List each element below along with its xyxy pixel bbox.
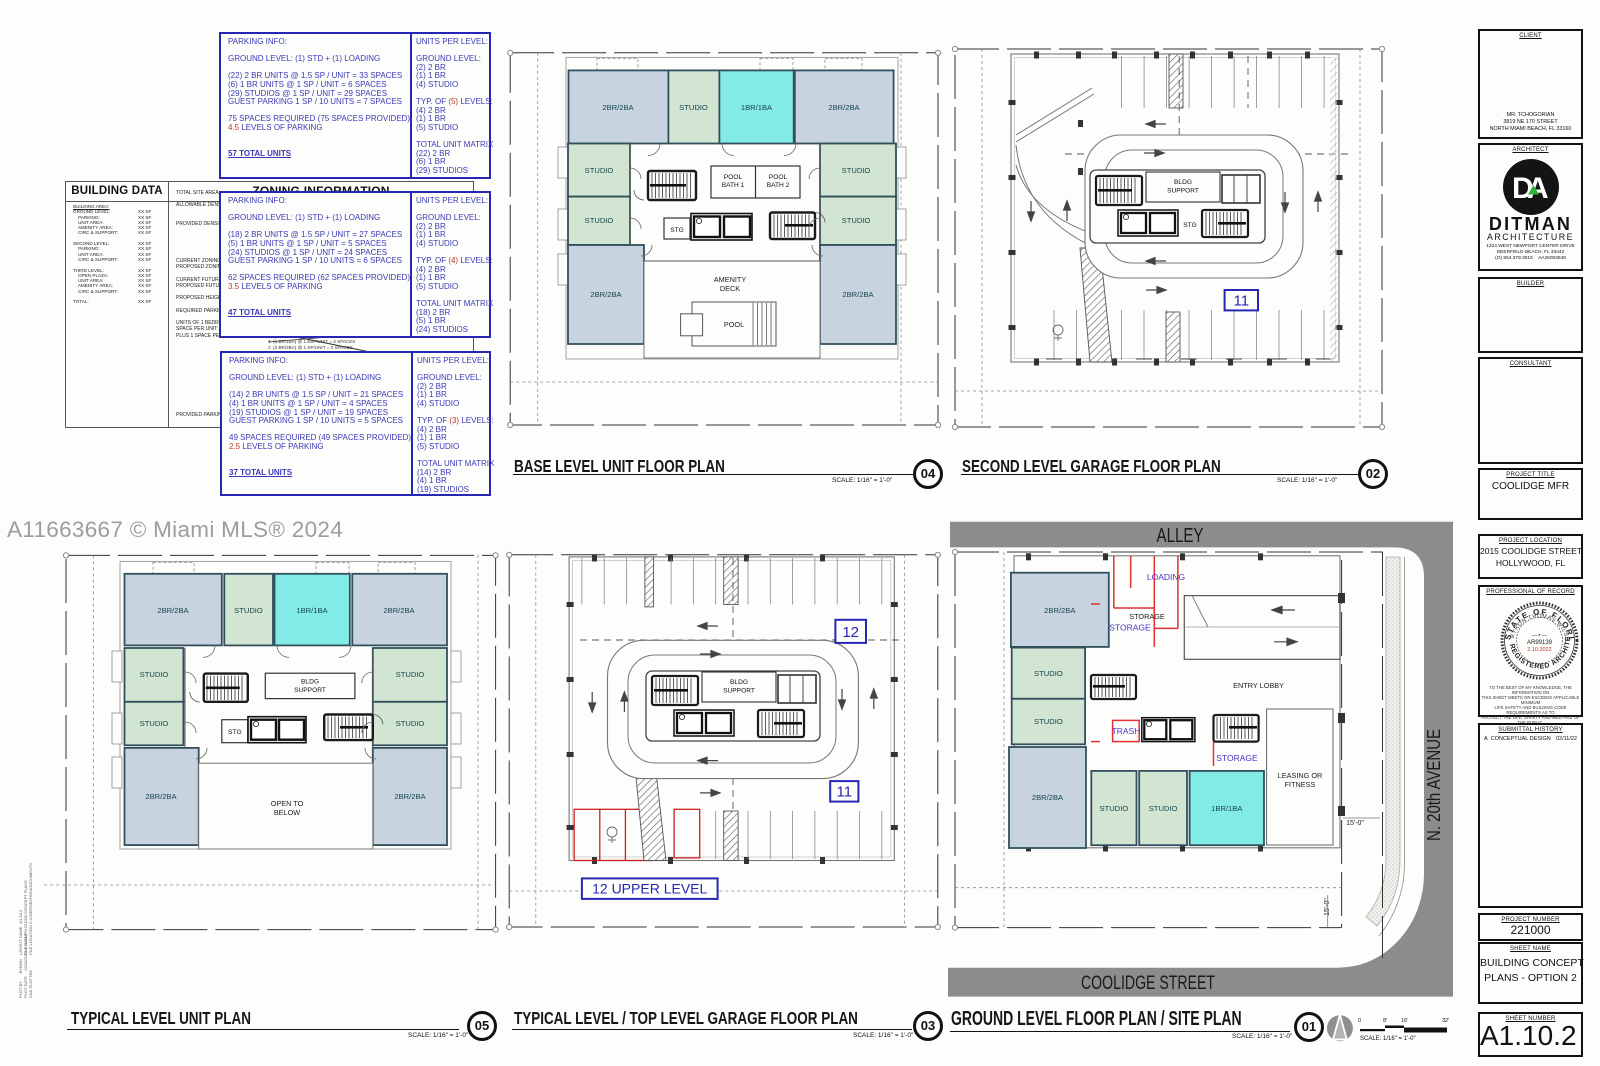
- svg-text:BLDG: BLDG: [730, 679, 748, 686]
- svg-text:2BR/2BA: 2BR/2BA: [602, 103, 634, 112]
- svg-text:STUDIO: STUDIO: [396, 670, 425, 679]
- svg-text:SUPPORT: SUPPORT: [294, 687, 326, 694]
- svg-text:1BR/1BA: 1BR/1BA: [296, 606, 328, 615]
- svg-text:STUDIO: STUDIO: [842, 166, 871, 175]
- svg-text:AMENITY: AMENITY: [714, 275, 747, 284]
- svg-text:STORAGE: STORAGE: [1216, 753, 1258, 763]
- svg-text:BATH 2: BATH 2: [767, 182, 790, 189]
- svg-text:8': 8': [1383, 1018, 1387, 1024]
- svg-text:POOL: POOL: [724, 174, 743, 181]
- svg-text:11: 11: [1234, 293, 1250, 310]
- svg-text:STUDIO: STUDIO: [396, 719, 425, 728]
- svg-text:11: 11: [837, 784, 853, 801]
- svg-text:STUDIO: STUDIO: [1149, 804, 1178, 813]
- svg-text:STG: STG: [1183, 222, 1197, 229]
- svg-text:A: A: [1527, 172, 1549, 205]
- svg-text:STUDIO: STUDIO: [1034, 669, 1063, 678]
- svg-text:LOADING: LOADING: [1147, 572, 1185, 582]
- svg-text:2BR/2BA: 2BR/2BA: [157, 606, 189, 615]
- svg-text:TRASH: TRASH: [1112, 726, 1141, 736]
- svg-text:2BR/2BA: 2BR/2BA: [842, 290, 874, 299]
- svg-text:ALLEY: ALLEY: [1157, 525, 1204, 547]
- svg-text:2BR/2BA: 2BR/2BA: [828, 103, 860, 112]
- svg-text:2BR/2BA: 2BR/2BA: [1032, 793, 1064, 802]
- svg-text:SUPPORT: SUPPORT: [723, 688, 755, 695]
- svg-text:STUDIO: STUDIO: [679, 103, 708, 112]
- svg-text:FITNESS: FITNESS: [1285, 780, 1316, 789]
- svg-text:— ▪ —: — ▪ —: [1532, 633, 1548, 639]
- svg-text:BELOW: BELOW: [274, 808, 300, 817]
- svg-text:BLDG: BLDG: [301, 679, 319, 686]
- svg-text:SCALE: 1/16" = 1'-0": SCALE: 1/16" = 1'-0": [1360, 1036, 1416, 1042]
- svg-text:32': 32': [1442, 1018, 1449, 1024]
- svg-text:2BR/2BA: 2BR/2BA: [1044, 606, 1076, 615]
- svg-text:STG: STG: [228, 729, 242, 736]
- svg-text:POOL: POOL: [769, 174, 788, 181]
- svg-text:DECK: DECK: [720, 284, 740, 293]
- svg-text:LEASING OR: LEASING OR: [1278, 771, 1323, 780]
- svg-text:STUDIO: STUDIO: [140, 670, 169, 679]
- svg-text:STORAGE: STORAGE: [1129, 612, 1165, 621]
- svg-text:2BR/2BA: 2BR/2BA: [394, 792, 426, 801]
- svg-text:STUDIO: STUDIO: [842, 216, 871, 225]
- svg-text:N. 20th AVENUE: N. 20th AVENUE: [1424, 729, 1444, 841]
- svg-text:STUDIO: STUDIO: [585, 216, 614, 225]
- svg-text:STUDIO: STUDIO: [234, 606, 263, 615]
- svg-text:COOLIDGE STREET: COOLIDGE STREET: [1081, 973, 1215, 994]
- svg-text:BATH 1: BATH 1: [722, 182, 745, 189]
- svg-text:STG: STG: [670, 227, 684, 234]
- svg-text:STORAGE: STORAGE: [1109, 623, 1151, 633]
- svg-text:0: 0: [1358, 1018, 1361, 1024]
- svg-text:2BR/2BA: 2BR/2BA: [590, 290, 622, 299]
- svg-text:1BR/1BA: 1BR/1BA: [1211, 804, 1243, 813]
- svg-text:OPEN TO: OPEN TO: [271, 799, 304, 808]
- svg-text:2BR/2BA: 2BR/2BA: [145, 792, 177, 801]
- svg-text:16': 16': [1401, 1018, 1408, 1024]
- svg-text:SUPPORT: SUPPORT: [1167, 188, 1199, 195]
- svg-text:STUDIO: STUDIO: [1100, 804, 1129, 813]
- svg-text:2BR/2BA: 2BR/2BA: [383, 606, 415, 615]
- svg-text:12: 12: [842, 624, 859, 641]
- svg-text:STUDIO: STUDIO: [585, 166, 614, 175]
- svg-text:ENTRY LOBBY: ENTRY LOBBY: [1233, 681, 1284, 690]
- svg-text:BLDG: BLDG: [1174, 179, 1192, 186]
- svg-text:POOL: POOL: [724, 320, 744, 329]
- svg-text:AR99139: AR99139: [1527, 640, 1553, 646]
- svg-text:15'-0": 15'-0": [1346, 820, 1364, 827]
- svg-text:2.10.2022: 2.10.2022: [1527, 647, 1551, 653]
- svg-text:STUDIO: STUDIO: [140, 719, 169, 728]
- svg-text:STUDIO: STUDIO: [1034, 717, 1063, 726]
- svg-text:1BR/1BA: 1BR/1BA: [741, 103, 773, 112]
- svg-text:12 UPPER LEVEL: 12 UPPER LEVEL: [592, 881, 707, 897]
